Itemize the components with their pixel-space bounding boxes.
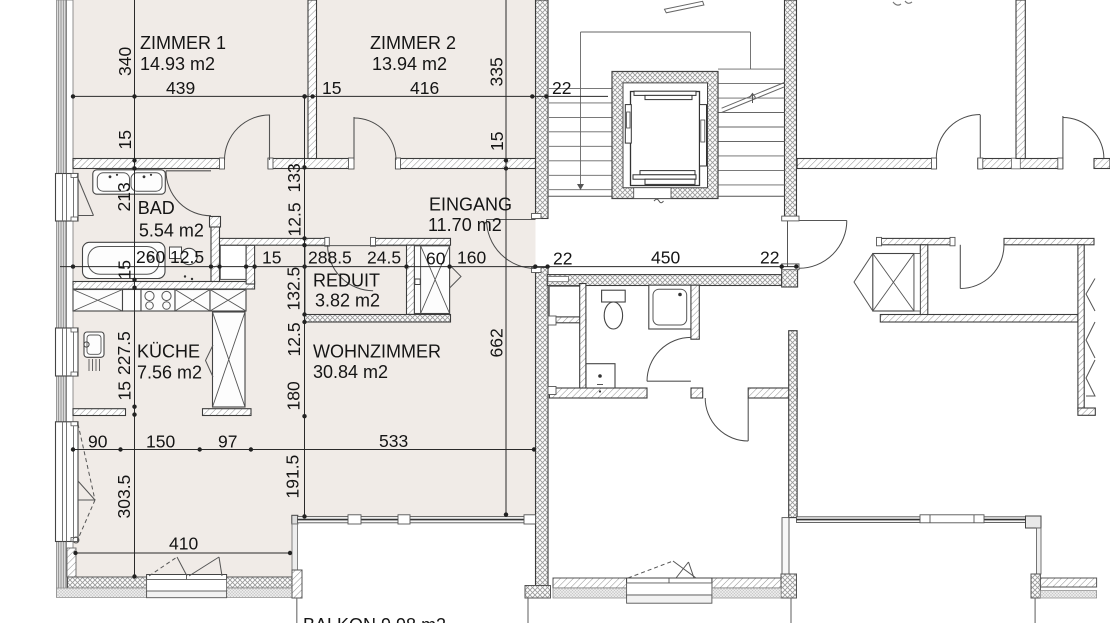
- svg-text:288.5: 288.5: [308, 248, 352, 268]
- svg-text:340: 340: [115, 47, 135, 76]
- svg-text:REDUIT: REDUIT: [313, 271, 380, 291]
- svg-text:416: 416: [410, 78, 439, 98]
- svg-text:227.5: 227.5: [114, 331, 134, 375]
- svg-text:EINGANG: EINGANG: [429, 195, 512, 215]
- svg-text:24.5: 24.5: [367, 248, 401, 268]
- svg-text:439: 439: [166, 78, 195, 98]
- svg-text:13.94 m2: 13.94 m2: [372, 54, 447, 74]
- svg-text:191.5: 191.5: [283, 455, 303, 499]
- svg-text:BALKON 9.98 m2: BALKON 9.98 m2: [303, 615, 446, 623]
- svg-text:450: 450: [651, 248, 680, 268]
- svg-text:97: 97: [218, 432, 237, 452]
- svg-text:90: 90: [88, 432, 108, 452]
- svg-text:60: 60: [426, 249, 446, 269]
- svg-text:160: 160: [457, 248, 486, 268]
- svg-text:22: 22: [553, 249, 572, 269]
- svg-text:15: 15: [487, 132, 507, 151]
- svg-text:30.84 m2: 30.84 m2: [313, 362, 388, 382]
- svg-text:15: 15: [115, 381, 135, 400]
- svg-text:335: 335: [487, 57, 507, 86]
- svg-text:132.5: 132.5: [284, 267, 304, 311]
- svg-text:3.82 m2: 3.82 m2: [315, 291, 380, 311]
- svg-text:150: 150: [146, 432, 175, 452]
- svg-text:213: 213: [114, 182, 134, 211]
- svg-text:12.5: 12.5: [284, 322, 304, 356]
- svg-text:ZIMMER 2: ZIMMER 2: [370, 33, 456, 53]
- svg-text:180: 180: [284, 381, 304, 410]
- svg-text:15: 15: [115, 130, 135, 149]
- svg-text:11.70 m2: 11.70 m2: [428, 215, 502, 235]
- svg-text:KÜCHE: KÜCHE: [137, 342, 200, 362]
- svg-text:260: 260: [136, 247, 165, 267]
- svg-text:12.5: 12.5: [170, 247, 204, 267]
- svg-text:5.54 m2: 5.54 m2: [139, 221, 204, 241]
- svg-text:662: 662: [487, 328, 507, 357]
- svg-text:7.56 m2: 7.56 m2: [137, 363, 202, 383]
- svg-text:533: 533: [379, 431, 408, 451]
- svg-text:15: 15: [262, 248, 281, 268]
- svg-text:22: 22: [760, 248, 779, 268]
- svg-text:BAD: BAD: [138, 198, 175, 218]
- svg-text:WOHNZIMMER: WOHNZIMMER: [313, 342, 441, 362]
- svg-text:15: 15: [115, 260, 135, 279]
- svg-text:22: 22: [552, 78, 571, 98]
- svg-text:15: 15: [322, 78, 341, 98]
- svg-text:410: 410: [169, 534, 198, 554]
- svg-text:ZIMMER 1: ZIMMER 1: [140, 33, 226, 53]
- svg-text:303.5: 303.5: [114, 475, 134, 519]
- svg-text:14.93 m2: 14.93 m2: [140, 54, 215, 74]
- svg-text:133: 133: [284, 163, 304, 192]
- svg-text:12.5: 12.5: [285, 202, 305, 236]
